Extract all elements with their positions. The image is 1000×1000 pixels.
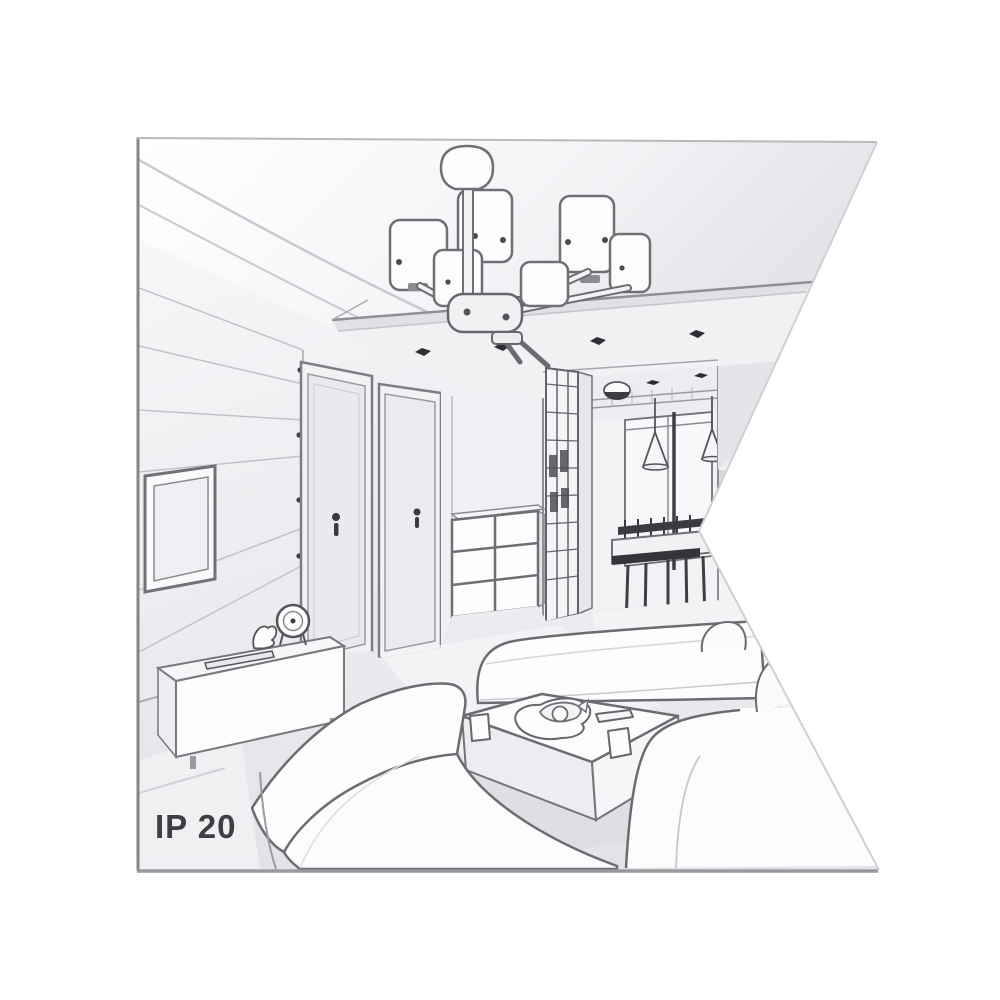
chandelier-stem: [463, 186, 473, 300]
door-right: [379, 384, 441, 659]
cup: [608, 728, 631, 758]
chandelier-shade: [560, 196, 614, 272]
right-wall: [718, 360, 790, 470]
chandelier-shade: [521, 262, 568, 306]
chandelier-hub: [448, 294, 522, 332]
drawer-chest: [452, 505, 545, 617]
glazed-cabinet: [546, 368, 592, 622]
wall-tv: [145, 466, 215, 592]
door-left: [301, 362, 372, 666]
chandelier-canopy: [441, 146, 493, 189]
chandelier-shade: [610, 234, 650, 292]
ip-rating-label: IP 20: [155, 808, 236, 845]
cup: [470, 714, 490, 741]
product-illustration-canvas: IP 20: [0, 0, 1000, 1000]
room-illustration: IP 20: [0, 0, 1000, 1000]
